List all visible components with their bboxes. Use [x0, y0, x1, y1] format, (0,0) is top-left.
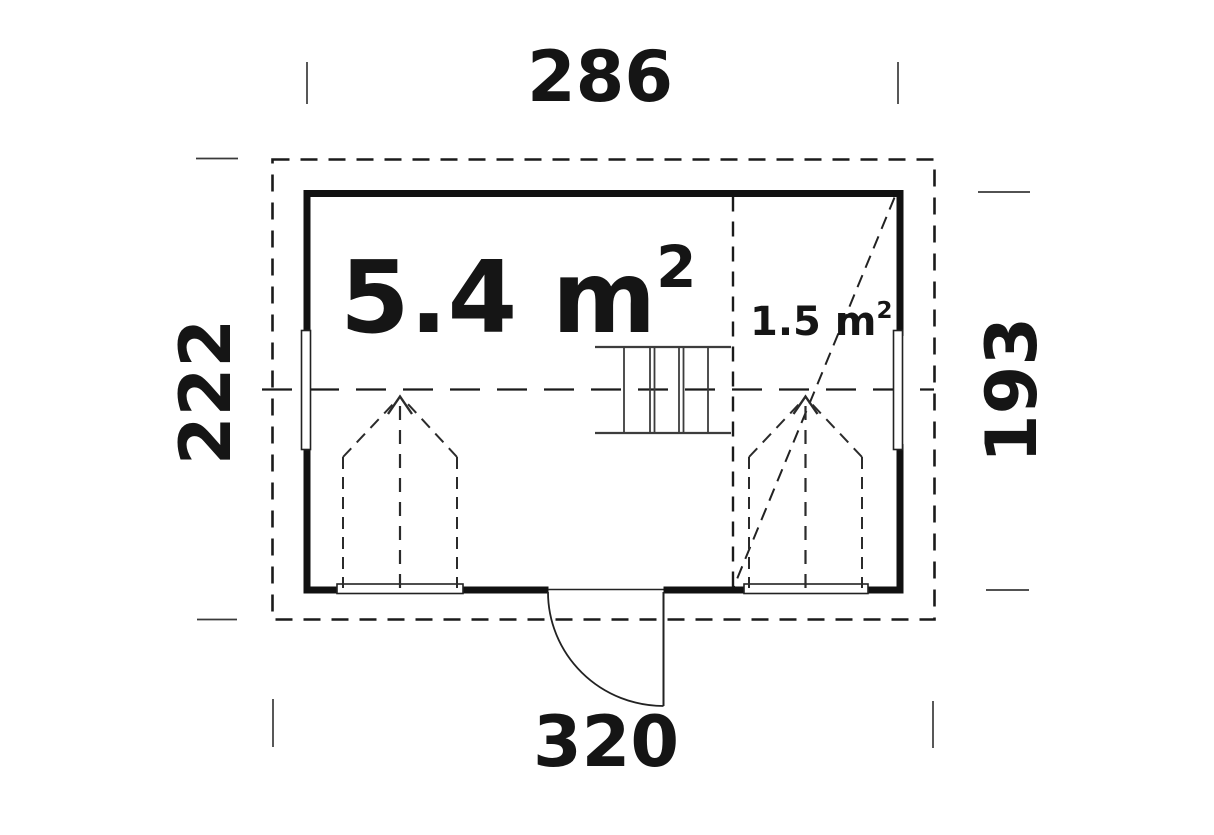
- dimension-top-label: 286: [527, 36, 673, 118]
- window-right-wall: [894, 331, 903, 450]
- windows: [302, 331, 903, 594]
- dimension-left-label: 222: [165, 319, 247, 465]
- floor-plan-drawing: 286 320 222 193 5.4 m2 1.5 m2: [0, 0, 1214, 835]
- swing-angled-line: [811, 403, 862, 457]
- window-swing-indicator-right: [749, 397, 862, 589]
- floor-plan-canvas: 286 320 222 193 5.4 m2 1.5 m2: [0, 0, 1214, 835]
- door-swing-arc: [548, 592, 664, 706]
- main-room-area-superscript: 2: [656, 233, 696, 301]
- window-left-wall: [302, 331, 311, 450]
- swing-angled-line: [407, 403, 457, 457]
- swing-angled-line: [343, 403, 394, 457]
- dimension-right-label: 193: [971, 317, 1053, 463]
- side-room-area-label: 1.5 m2: [750, 298, 892, 345]
- window-swing-indicator-left: [343, 397, 457, 589]
- side-room-area-value: 1.5 m: [750, 299, 876, 345]
- dimension-ticks: [196, 62, 1030, 748]
- entrance-door: [548, 590, 664, 707]
- main-room-area-label: 5.4 m2: [340, 233, 697, 356]
- main-room-area-value: 5.4 m: [340, 239, 656, 356]
- loft-diagonal-line: [734, 198, 895, 588]
- dimension-bottom-label: 320: [533, 701, 679, 783]
- side-room-area-superscript: 2: [876, 298, 892, 324]
- swing-angled-line: [749, 403, 800, 457]
